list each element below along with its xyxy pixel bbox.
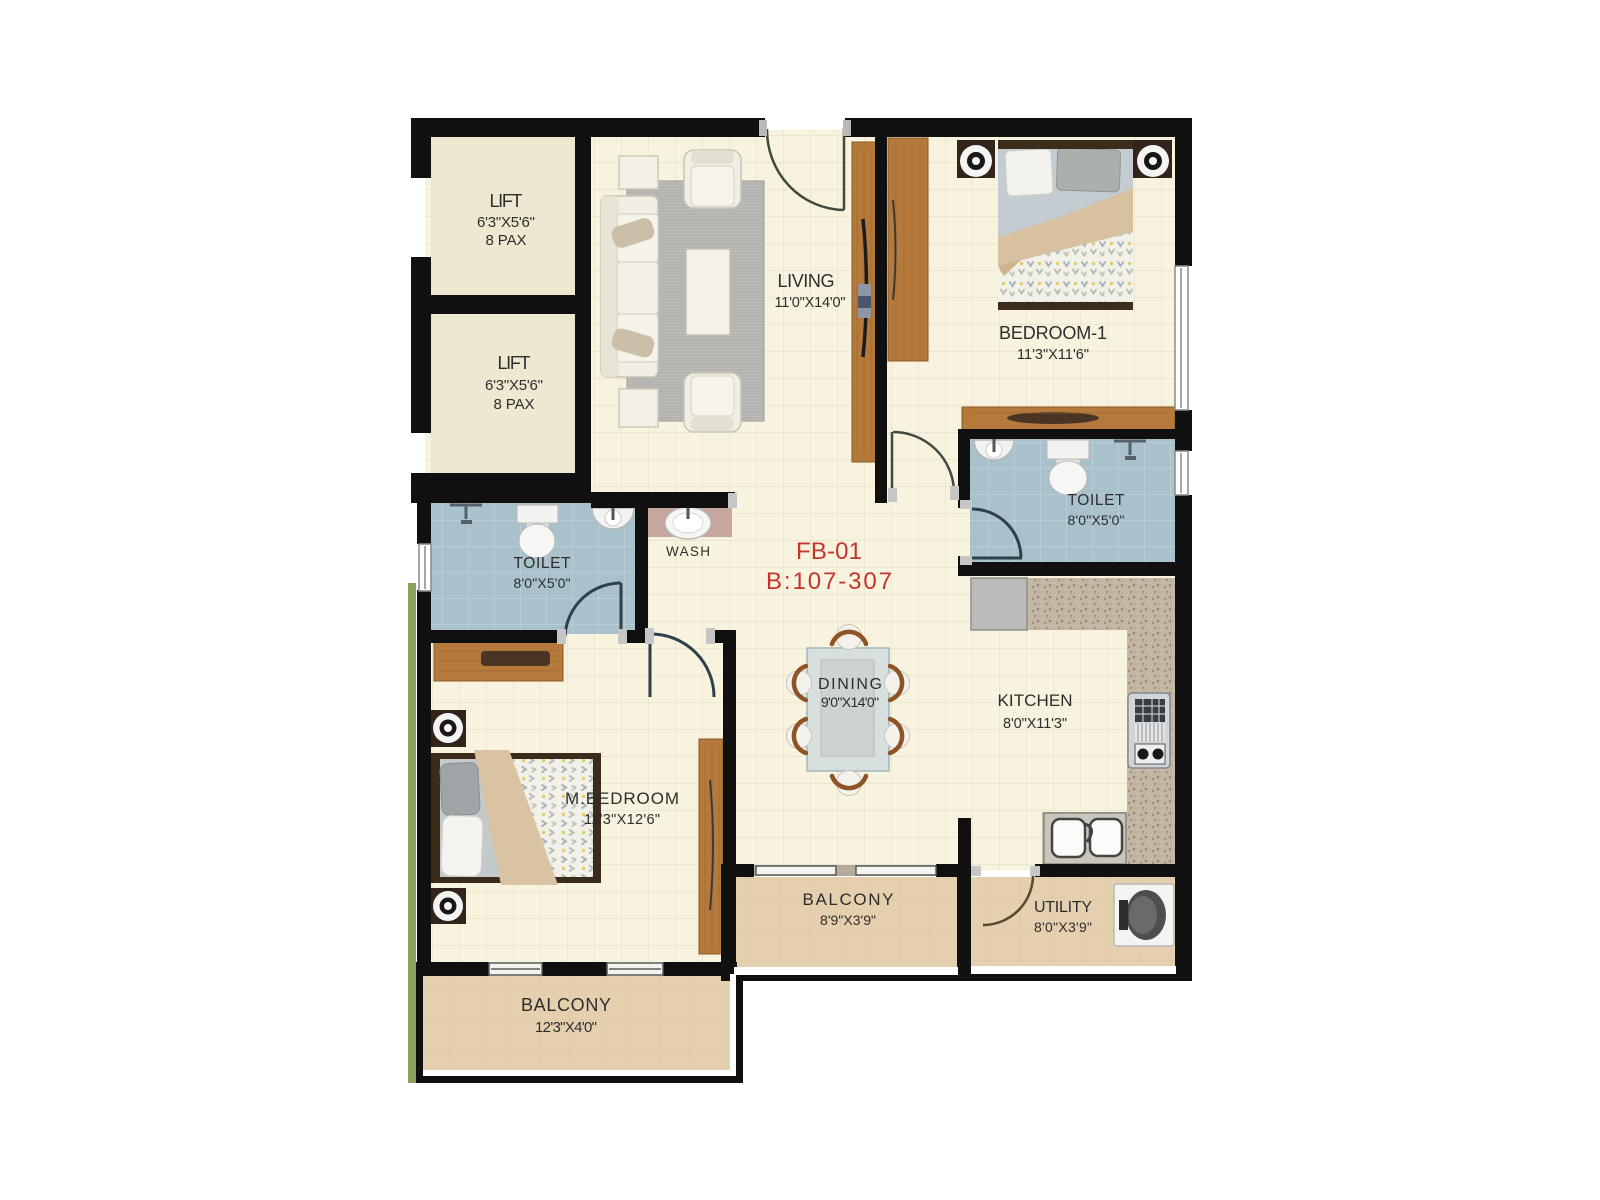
svg-text:BALCONY: BALCONY: [803, 890, 894, 909]
svg-text:9'0"X14'0": 9'0"X14'0": [821, 694, 879, 710]
svg-text:M.BEDROOM: M.BEDROOM: [565, 789, 679, 808]
svg-text:11'3"X12'6": 11'3"X12'6": [584, 812, 660, 828]
svg-text:8'9"X3'9": 8'9"X3'9": [820, 912, 876, 928]
svg-text:B:107-307: B:107-307: [766, 568, 892, 595]
svg-text:WASH: WASH: [666, 544, 710, 559]
svg-text:TOILET: TOILET: [514, 555, 572, 572]
svg-text:BEDROOM-1: BEDROOM-1: [999, 323, 1107, 343]
svg-text:BALCONY: BALCONY: [521, 995, 611, 1015]
svg-text:8 PAX: 8 PAX: [494, 396, 535, 413]
svg-text:DINING: DINING: [818, 676, 882, 693]
svg-text:TOILET: TOILET: [1068, 492, 1126, 509]
svg-text:6'3"X5'6": 6'3"X5'6": [485, 377, 543, 394]
svg-text:UTILITY: UTILITY: [1034, 899, 1092, 916]
svg-text:8'0"X11'3": 8'0"X11'3": [1003, 716, 1067, 732]
svg-text:FB-01: FB-01: [796, 538, 862, 565]
svg-text:8'0"X5'0": 8'0"X5'0": [1068, 512, 1125, 528]
svg-text:6'3"X5'6": 6'3"X5'6": [477, 214, 535, 231]
svg-text:11'3"X11'6": 11'3"X11'6": [1017, 347, 1089, 363]
svg-text:8 PAX: 8 PAX: [486, 232, 527, 249]
svg-text:11'0"X14'0": 11'0"X14'0": [775, 295, 846, 311]
svg-text:12'3"X4'0": 12'3"X4'0": [535, 1019, 597, 1036]
svg-text:8'0"X3'9": 8'0"X3'9": [1034, 919, 1092, 935]
svg-text:LIFT: LIFT: [498, 353, 531, 373]
svg-text:LIVING: LIVING: [778, 271, 835, 291]
svg-text:KITCHEN: KITCHEN: [998, 691, 1073, 710]
svg-text:LIFT: LIFT: [490, 191, 523, 211]
svg-text:8'0"X5'0": 8'0"X5'0": [514, 575, 571, 591]
